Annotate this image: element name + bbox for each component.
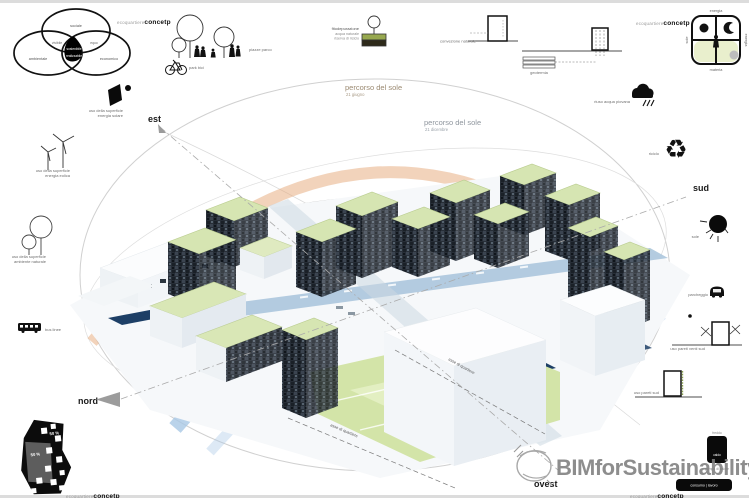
winter-path-subtitle: 21 dicembre [425,127,449,132]
sun-path-labels: percorso del sole 21 giugno percorso del… [345,83,481,132]
compass-est: est [148,114,161,124]
brand-light: ecoquartiere [630,494,657,498]
venn-overlap-label: vivibile [52,41,62,45]
phytodepuration-sub1: acqua naturale [335,32,359,36]
south-walls-label: uso pareti sud [634,390,659,395]
brand-bold: concetp [663,20,689,27]
tower-block [474,203,529,268]
winter-path-title: percorso del sole [424,118,481,127]
brand-light: ecoquartiere [66,494,93,498]
nord-arrow [96,392,120,407]
natural-convection-section [468,16,518,41]
park-label: piazze parco [249,47,272,52]
rain-cloud-icon [632,84,654,106]
recycle-icon: ♻ [664,134,687,164]
compass-nord: nord [78,396,98,406]
sustainability-venn-diagram: sociale ambientale economico vivibile eq… [14,9,130,75]
bus-label: bus linee [45,327,62,332]
natural-tree-icon [22,216,52,255]
venn-top-label: sociale [70,24,82,28]
venn-center-label: sostenibile [66,47,81,51]
small-dot-icon [688,314,692,318]
recycle-label: riciclo [649,151,660,156]
venn-right-label: economico [100,57,118,61]
sun-icon [700,215,728,242]
bike-icon [166,60,187,75]
site-plan-pct-right: 50 % [49,430,59,436]
south-wind-walls-section [672,322,742,345]
tower-block [296,219,356,297]
consumption-bar-icon: consumo | lavoro [676,479,732,491]
south-wind-walls-label: uso pareti venti sud [670,346,705,351]
heat-pump-top-label: freddo [712,431,722,435]
site-plan-pct-left: 50 % [30,451,40,457]
solar-surface-icon [108,84,131,106]
brand-bottom-right: ecoquartiereconcetp [630,485,684,498]
brand-top-right: ecoquartiereconcetp [636,12,690,30]
grid-right-label: energia [744,34,748,48]
rainwater-label: riuso acqua piovana [594,99,631,104]
sun-dot-icon [700,24,709,33]
bus-icon [18,323,41,333]
grid-bottom-label: materia [710,68,724,72]
white-tower [560,285,645,376]
brand-light: ecoquartiere [636,21,663,26]
venn-overlap-label: equo [90,41,98,45]
consumption-label: consumo | lavoro [690,484,717,488]
phytodepuration-title: fitodepurazione [332,26,360,31]
parking-label: parcheggio [688,292,709,297]
concept-grid-icon: energia materia sole energia [685,9,748,72]
solar-surface-label2: energia solare [98,113,124,118]
venn-center-sublabel: realizzabile [66,54,82,58]
city-model [70,164,690,478]
summer-path-subtitle: 21 giugno [346,92,365,97]
geothermal-section [522,28,622,68]
natural-convection-label: convezione naturale [440,39,477,44]
summer-path-title: percorso del sole [345,83,402,92]
scene: asse di quartiere asse di quartiere perc… [0,0,749,498]
watermark-text: BIMforSustainability [556,455,749,480]
phytodepuration-icon [362,16,386,46]
brand-bold: concetp [657,493,683,498]
page-top-edge [0,0,749,3]
grid-top-label: energia [710,9,724,13]
brand-light: ecoquartiere [117,20,144,25]
people-icons [194,44,241,57]
bike-label: park bici [189,65,204,70]
brand-bold: concetp [93,493,119,498]
ecoquartiere-concept-board: asse di quartiere asse di quartiere perc… [0,0,749,498]
sun-label: sole [692,234,700,239]
wind-turbine-icon [41,134,74,170]
car-icon [710,287,724,298]
wind-surface-label2: energia eolica [45,173,71,178]
geothermal-label: geotermia [530,70,549,75]
venn-left-label: ambientale [29,57,48,61]
tower-block [392,207,450,277]
brand-top-left: ecoquartiereconcetp [117,11,171,29]
big-white-box [384,308,546,466]
phytodepuration-sub2: riserva di riciclo [334,37,359,41]
grid-left-label: sole [685,37,689,44]
brand-bottom-left: ecoquartiereconcetp [66,485,120,498]
tower-block [282,318,338,418]
brand-bold: concetp [144,19,170,26]
natural-surface-label2: ambiente naturale [14,259,47,264]
compass-sud: sud [693,183,709,193]
